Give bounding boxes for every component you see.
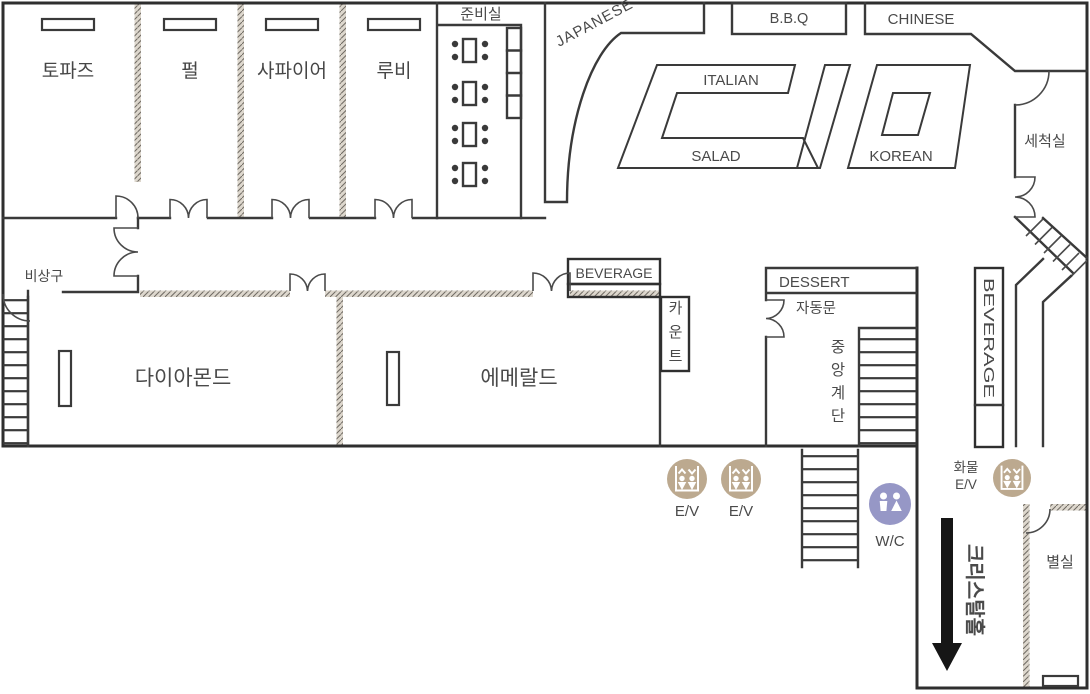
partition-pearl-sapphire [238, 3, 245, 218]
dessert-label: DESSERT [779, 274, 850, 291]
crystal-hall-arrow [932, 518, 962, 671]
ruby-board [368, 19, 420, 30]
topaz-label: 토파즈 [42, 60, 94, 82]
prep-table [452, 82, 488, 105]
annex-door [1026, 509, 1050, 533]
crystal-hall-label: 크리스탈홀 [963, 544, 987, 636]
prep-table [452, 163, 488, 186]
emerald-door [533, 273, 570, 291]
inner-walls [3, 3, 1087, 567]
escalator-landing-walls [1016, 259, 1071, 446]
pearl-door [170, 200, 207, 219]
prep-shelf-dividers [507, 51, 521, 96]
ruby-label: 루비 [377, 60, 412, 82]
auto-door-label: 자동문 [796, 300, 836, 317]
sapphire-label: 사파이어 [257, 60, 327, 82]
prep-tables [452, 39, 488, 186]
diamond-label: 다이아몬드 [135, 367, 232, 390]
annex-north-wall [1050, 504, 1087, 511]
wc-icon [869, 483, 911, 525]
corridor-wall-west [140, 291, 290, 298]
sapphire-board [266, 19, 318, 30]
slash-island [797, 65, 850, 168]
elevator-icon [721, 459, 761, 499]
salad-label: SALAD [691, 148, 740, 165]
prep-table [452, 39, 488, 62]
japanese-label: JAPANESE [553, 0, 636, 51]
korean-island-inner [882, 93, 930, 135]
emergency-exit-label: 비상구 [25, 268, 64, 284]
pearl-board [164, 19, 216, 30]
emerald-board [387, 352, 399, 405]
ruby-door [375, 200, 412, 219]
diamond-door [290, 274, 325, 291]
prep-label: 준비실 [460, 6, 501, 23]
central-stairs-lower [802, 450, 858, 567]
partition-topaz-pearl [135, 3, 142, 182]
corridor-wall-mid [325, 291, 533, 298]
cargo-label: 화물 [954, 460, 979, 475]
washroom-label: 세척실 [1024, 133, 1065, 150]
emerald-label: 에메랄드 [480, 367, 557, 390]
annex-west-wall [1023, 504, 1030, 689]
cargo-ev-label: E/V [955, 477, 977, 492]
topaz-door [116, 196, 138, 218]
washroom-south-double-door [1015, 177, 1035, 217]
beverage-side-label: BEVERAGE [980, 278, 997, 398]
korean-label: KOREAN [869, 148, 932, 165]
partition-sapphire-ruby [340, 3, 347, 218]
ev2-label: E/V [729, 503, 753, 520]
emergency-stairs [3, 297, 28, 446]
elevator-icon [667, 459, 707, 499]
auto-door-symbol [766, 300, 784, 337]
chinese-label: CHINESE [888, 11, 955, 28]
beverage-top-label: BEVERAGE [575, 265, 652, 281]
counter-label: 카운트 [669, 300, 683, 365]
partition-diamond-emerald [337, 297, 344, 447]
sapphire-door [272, 200, 309, 219]
italian-label: ITALIAN [703, 72, 759, 89]
washroom-north-door [1015, 71, 1049, 105]
annex-board [1043, 676, 1078, 686]
doors [3, 71, 1050, 533]
central-stair-label: 중앙계단 [831, 339, 845, 425]
ev1-label: E/V [675, 503, 699, 520]
prep-room-walls [437, 3, 521, 218]
diamond-board [59, 351, 71, 406]
pearl-label: 펄 [181, 60, 198, 82]
floorplan-svg: 토파즈 펄 사파이어 루비 준비실 다이아몬드 에메랄드 세척실 별실 JAPA… [0, 0, 1090, 694]
central-stairs-upper [859, 329, 916, 446]
wc-label: W/C [875, 533, 904, 550]
annex-label: 별실 [1046, 554, 1074, 571]
prep-table [452, 123, 488, 146]
topaz-board [42, 19, 94, 30]
cargo-elevator-icon [993, 459, 1031, 497]
bbq-label: B.B.Q [770, 11, 809, 27]
emergency-corridor-double-door [114, 228, 138, 276]
